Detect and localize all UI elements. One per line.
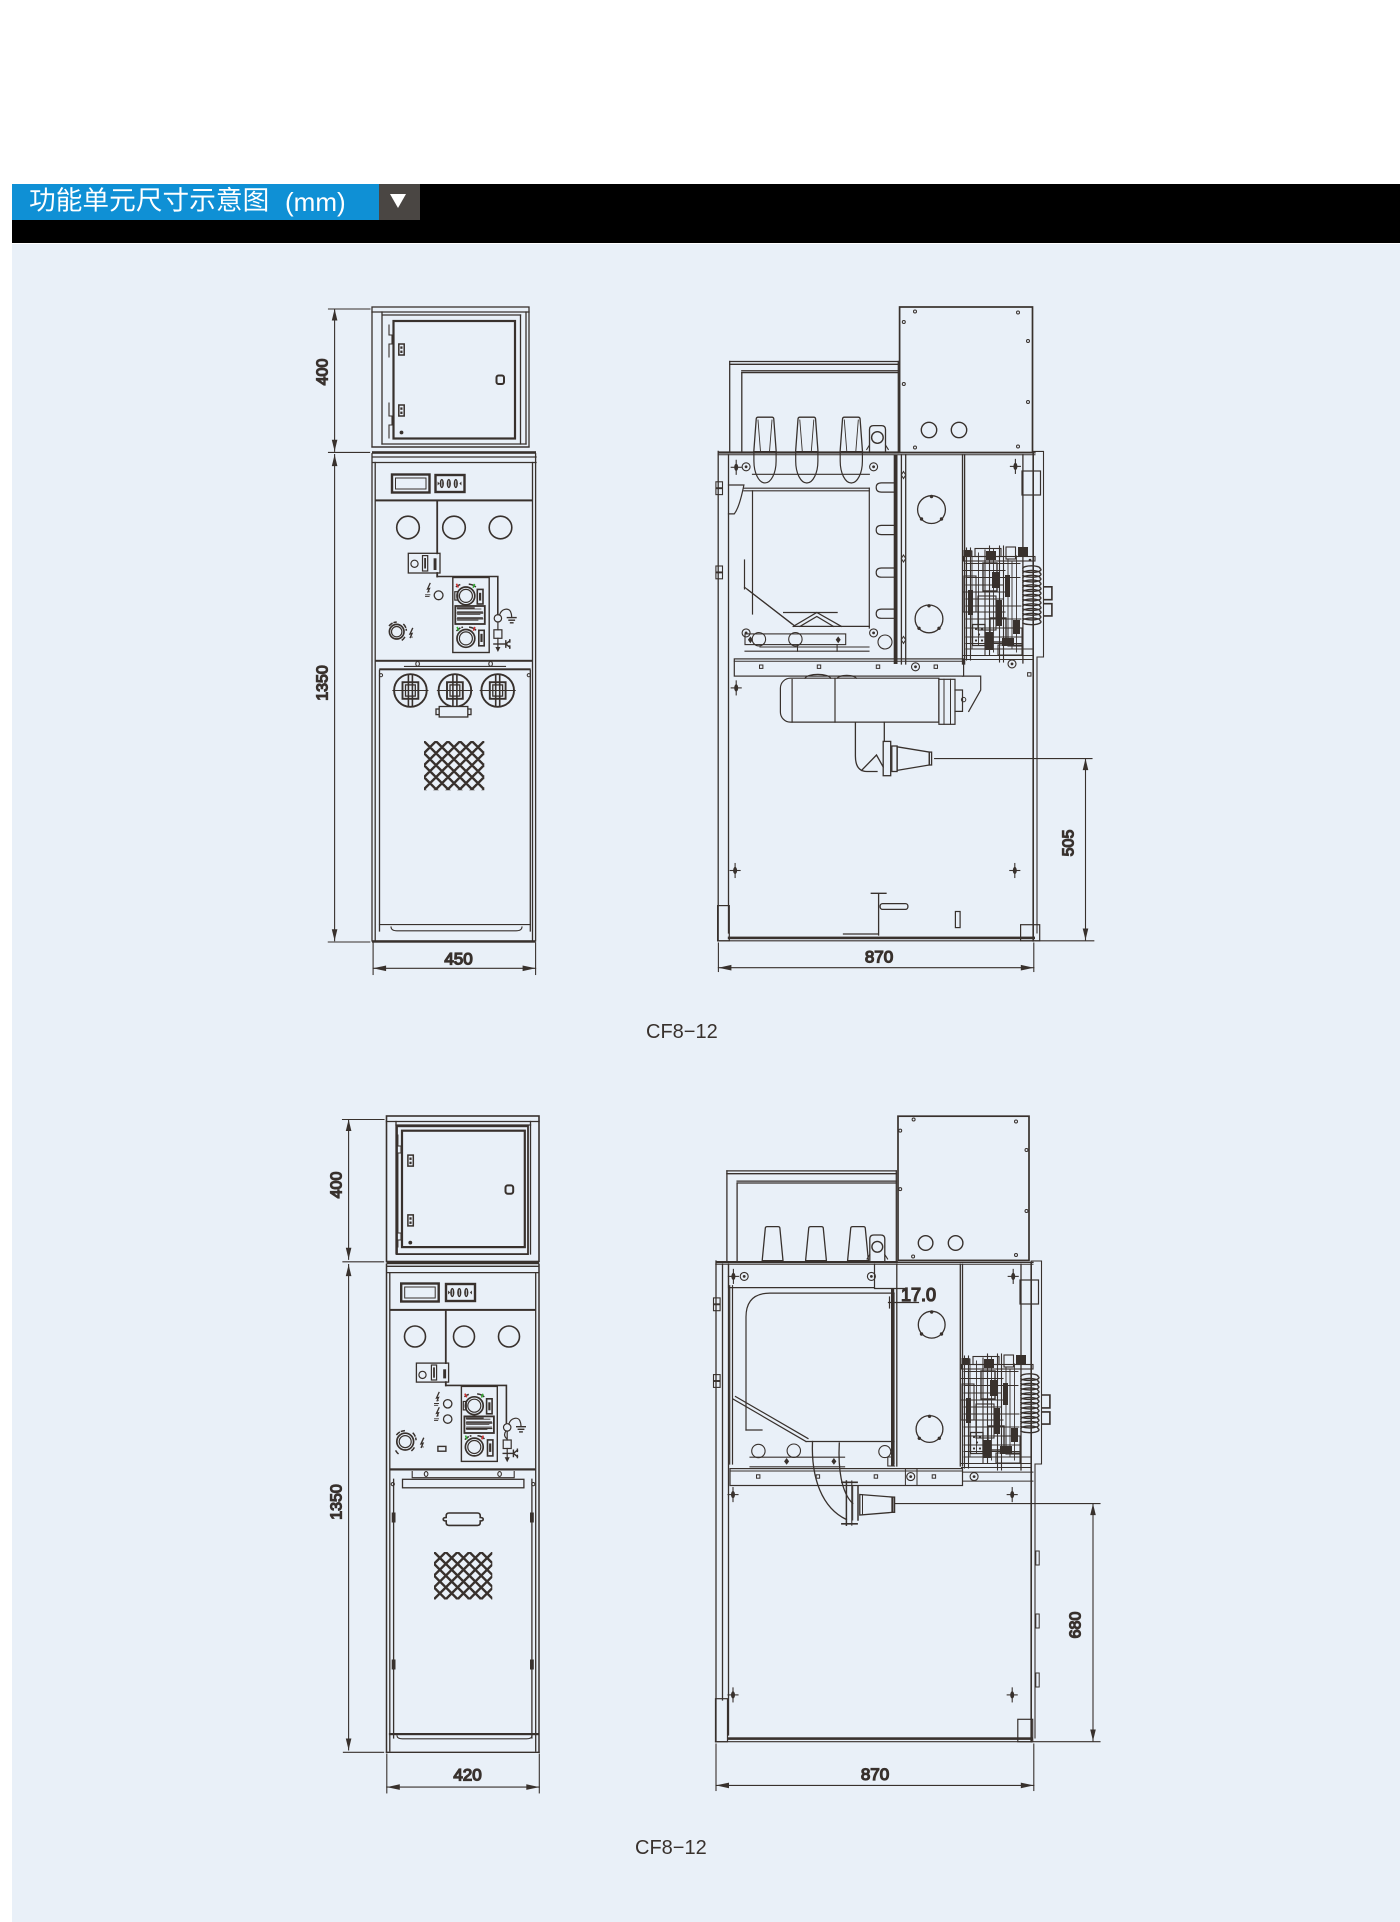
svg-text:420: 420 [453, 1766, 481, 1785]
svg-text:(mm): (mm) [285, 187, 346, 217]
svg-text:1350: 1350 [315, 665, 332, 701]
svg-text:CF8−12: CF8−12 [635, 1837, 707, 1859]
svg-text:400: 400 [315, 359, 332, 386]
svg-text:CF8−12: CF8−12 [646, 1021, 718, 1043]
svg-text:400: 400 [329, 1172, 346, 1199]
svg-text:1350: 1350 [329, 1484, 346, 1520]
svg-text:870: 870 [861, 1765, 889, 1784]
svg-text:870: 870 [865, 948, 893, 967]
svg-text:450: 450 [444, 950, 472, 969]
svg-text:680: 680 [1068, 1612, 1085, 1639]
svg-text:505: 505 [1061, 830, 1078, 857]
